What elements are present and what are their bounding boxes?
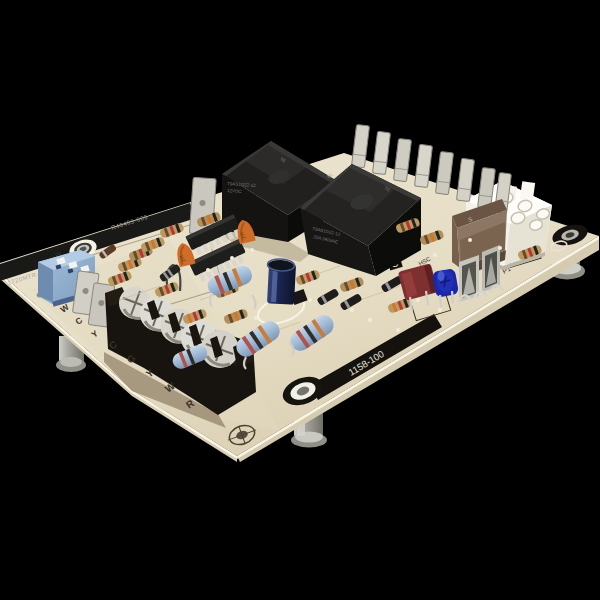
svg-text:12VDC: 12VDC bbox=[227, 188, 243, 194]
